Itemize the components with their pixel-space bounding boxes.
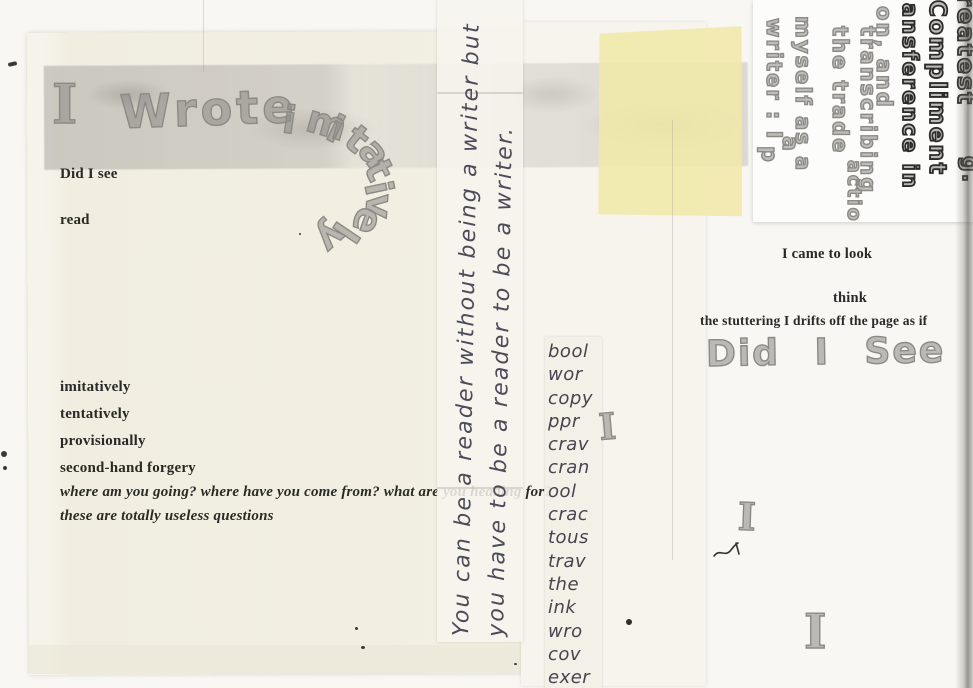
- scan-edge-shadow: [955, 0, 973, 688]
- fragment-word: crac: [548, 503, 605, 526]
- fragment-word: ink: [548, 596, 605, 619]
- typed-list-provisionally: provisionally: [60, 433, 146, 450]
- rotated-fragment-writer-i: writer : I: [763, 18, 785, 140]
- fragment-word: wro: [548, 620, 605, 643]
- rotated-fragment-action: action: [843, 160, 863, 222]
- rotated-fragment-a: a: [778, 136, 801, 153]
- ink-speck: [3, 466, 7, 470]
- rotated-fragment-p: p: [757, 146, 780, 164]
- ink-squiggle: [712, 540, 746, 562]
- typed-i-came-to-look: I came to look: [782, 246, 872, 263]
- rotated-fragment-ansference-in: ansference in: [899, 3, 921, 190]
- fragment-word: the: [548, 573, 605, 596]
- typed-did-i-see: Did I see: [60, 166, 118, 183]
- rotated-handwriting: You can be a reader without being a writ…: [444, 22, 525, 637]
- ink-speck: [1, 451, 7, 457]
- scattered-bubble-i-2: I: [737, 494, 756, 540]
- typed-think: think: [833, 290, 867, 307]
- yellow-paper-patch: [594, 26, 747, 222]
- bubble-title-i: I: [52, 72, 77, 136]
- ink-speck: [8, 61, 18, 67]
- scattered-bubble-i-3: I: [804, 604, 826, 660]
- typed-read: read: [60, 212, 90, 229]
- fragment-word: tous: [548, 526, 605, 549]
- bubble-title-wrote: Wrote: [119, 79, 298, 139]
- sheet-bottom-crease-band: [28, 645, 540, 674]
- ink-speck: [355, 627, 358, 630]
- fragment-word: ppr: [548, 410, 605, 433]
- typed-stuttering-line: the stuttering I drifts off the page as …: [700, 313, 927, 329]
- typed-list-imitatively: imitatively: [60, 379, 131, 396]
- typed-list-tentatively: tentatively: [60, 406, 130, 423]
- ink-blot: [626, 619, 632, 625]
- paper-crease: [203, 0, 204, 72]
- fragment-word: ool: [548, 480, 605, 503]
- ink-speck: [361, 646, 365, 649]
- typed-italic-statement: these are totally useless questions: [60, 508, 274, 525]
- fragment-word: crav: [548, 433, 605, 456]
- rotated-fragment-the-trade: the trade: [829, 26, 851, 154]
- fragment-word: trav: [548, 550, 605, 573]
- top-right-paper-sheet: reatest Compliment ansference in on, and…: [753, 0, 973, 222]
- fragment-word-column: bool wor copy ppr crav cran ool crac tou…: [548, 340, 605, 688]
- fragment-word: wor: [548, 363, 605, 386]
- rotated-fragment-compliment: Compliment: [925, 0, 949, 176]
- ink-speck: [514, 663, 517, 665]
- bubble-did-i-see: Did I See: [706, 330, 946, 375]
- scattered-bubble-i-1: I: [597, 405, 617, 448]
- fragment-word: cran: [548, 456, 605, 479]
- typed-list-second-hand-forgery: second-hand forgery: [60, 460, 196, 477]
- fragment-word: bool: [548, 340, 605, 363]
- paper-crease: [672, 120, 673, 560]
- fragment-word: cov: [548, 643, 605, 666]
- ink-speck: [299, 233, 301, 235]
- fragment-word: exer: [548, 666, 605, 688]
- scanned-collage-page: Did I see read imitatively tentatively p…: [0, 0, 973, 688]
